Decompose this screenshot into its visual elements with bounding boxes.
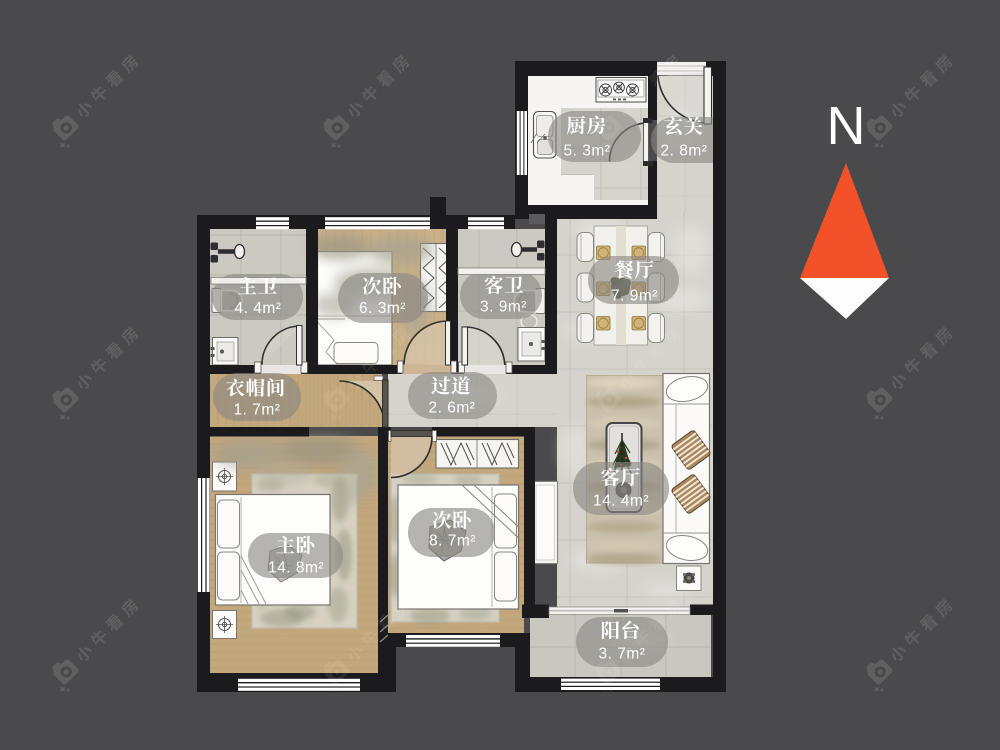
svg-text:2. 8m²: 2. 8m² <box>661 142 708 159</box>
svg-text:4. 4m²: 4. 4m² <box>235 300 282 317</box>
svg-text:7. 9m²: 7. 9m² <box>611 287 658 304</box>
svg-text:1. 7m²: 1. 7m² <box>234 401 281 418</box>
svg-text:N: N <box>827 96 866 156</box>
svg-text:6. 3m²: 6. 3m² <box>359 300 406 317</box>
svg-text:5. 3m²: 5. 3m² <box>564 142 611 159</box>
svg-text:14. 4m²: 14. 4m² <box>593 492 649 509</box>
svg-text:14. 8m²: 14. 8m² <box>268 559 324 576</box>
svg-text:3. 9m²: 3. 9m² <box>480 298 527 315</box>
svg-text:8. 7m²: 8. 7m² <box>429 532 476 549</box>
svg-text:2. 6m²: 2. 6m² <box>429 399 476 416</box>
